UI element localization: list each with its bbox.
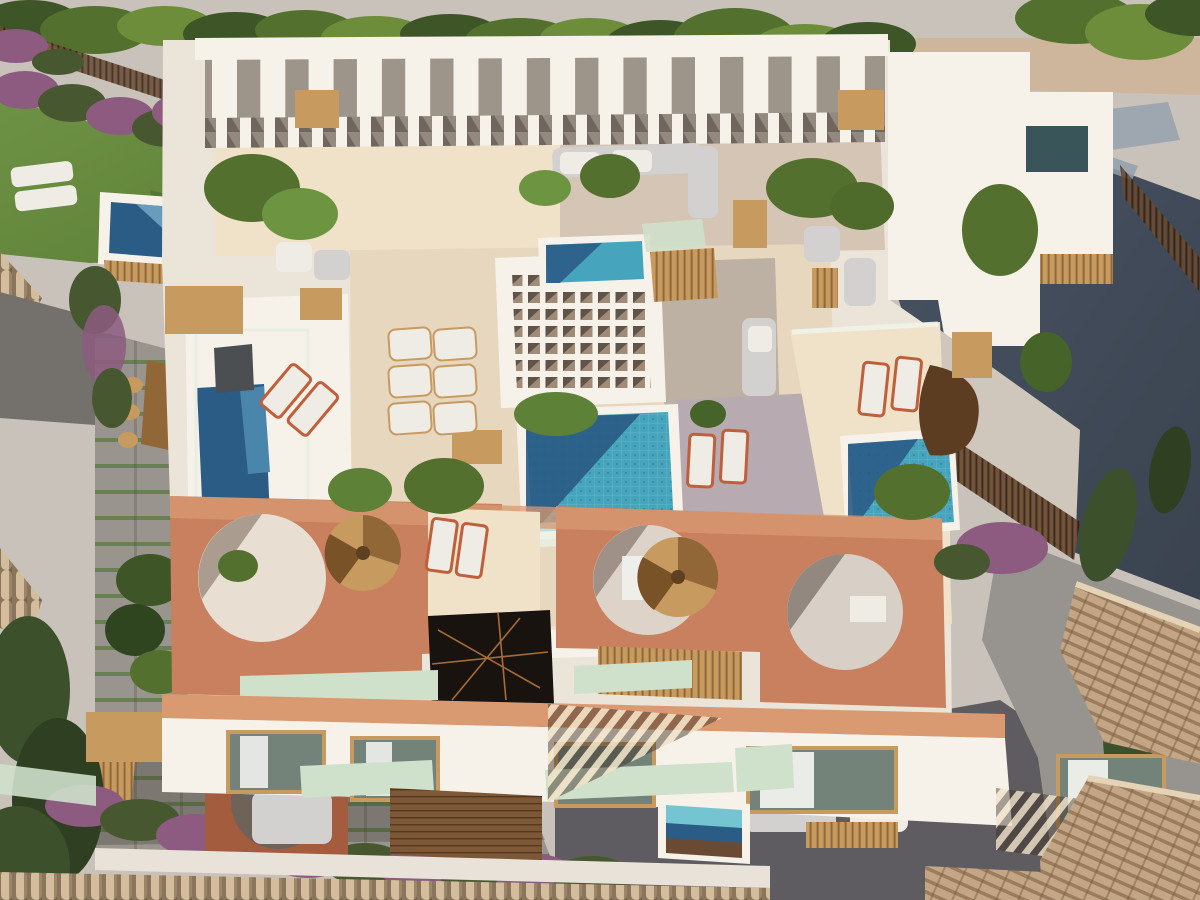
- arch-plant: [218, 550, 258, 582]
- parapet-top: [195, 34, 888, 60]
- arch-daybed: [850, 596, 886, 622]
- lounge-sofa: [688, 146, 718, 218]
- deck-chair: [456, 523, 488, 578]
- palm-pot: [328, 468, 392, 512]
- wood-box: [952, 332, 992, 378]
- palm-cluster: [519, 170, 571, 206]
- wood-box: [838, 90, 884, 130]
- wood-steps: [812, 268, 838, 308]
- slat-wall: [806, 822, 898, 848]
- palm-cluster: [830, 182, 894, 230]
- armchair: [804, 226, 840, 262]
- planter: [690, 400, 726, 428]
- curtain: [240, 736, 268, 788]
- deck-chair: [720, 430, 748, 483]
- wood-box: [300, 288, 342, 320]
- pergola-pillar: [260, 50, 285, 126]
- palm-pot: [404, 458, 484, 514]
- deck-chair: [892, 357, 922, 411]
- sun-lounger: [433, 327, 477, 361]
- wood-screen: [650, 248, 718, 302]
- palm-pot: [874, 464, 950, 520]
- wood-box: [452, 430, 502, 464]
- armchair: [314, 250, 350, 280]
- wood-box: [295, 90, 339, 128]
- pergola-pillar: [357, 50, 382, 126]
- dining-chair: [118, 432, 138, 448]
- glass-canopy: [642, 219, 706, 252]
- aerial-render-scene: [0, 0, 1200, 900]
- wood-deck: [390, 788, 542, 864]
- street-bougainvillea-leaf: [934, 544, 990, 580]
- roof-louver: [1040, 254, 1113, 284]
- pergola-pillar: [550, 50, 575, 126]
- pergola-pillar: [454, 50, 479, 126]
- bougainvillea-leaf-corner: [32, 49, 84, 75]
- armchair: [844, 258, 876, 306]
- sun-lounger: [388, 401, 432, 435]
- wood-box: [733, 200, 767, 248]
- sun-lounger: [433, 401, 477, 435]
- spiral-stair-left: [325, 515, 401, 591]
- deck-chair: [859, 362, 889, 416]
- palm-pot: [514, 392, 598, 436]
- palm-cluster: [580, 154, 640, 198]
- tall-palm: [962, 184, 1038, 276]
- rooftop-skylight: [1026, 126, 1088, 172]
- vine-leaves: [92, 368, 132, 428]
- pergola-pillar: [502, 50, 527, 126]
- plunge-pool-group: [658, 798, 750, 864]
- deck-chair: [687, 434, 715, 487]
- sun-lounger: [388, 364, 432, 398]
- pergola-pillar: [405, 50, 430, 126]
- spiral-stair-right: [637, 537, 718, 617]
- sun-lounger: [388, 327, 432, 361]
- sofa-cushion: [748, 326, 772, 352]
- sun-lounger: [433, 364, 477, 398]
- deck-chair: [426, 518, 458, 573]
- pergola-pillar: [212, 50, 237, 126]
- fern-bed: [105, 604, 165, 656]
- garden-sofa: [252, 792, 332, 844]
- armchair: [276, 242, 312, 272]
- render-svg: [0, 0, 1200, 900]
- wood-box: [165, 286, 243, 334]
- fern-pot: [1020, 332, 1072, 392]
- balcony-glass: [735, 744, 794, 792]
- palm-cluster: [262, 188, 338, 240]
- lap-pool-cover: [214, 344, 254, 393]
